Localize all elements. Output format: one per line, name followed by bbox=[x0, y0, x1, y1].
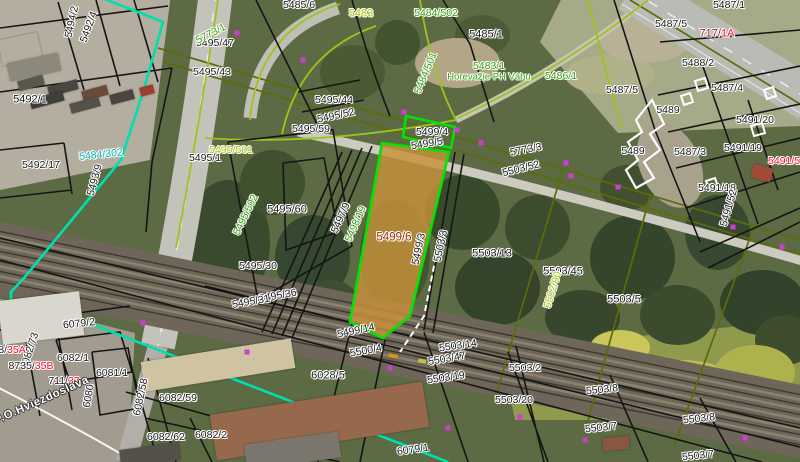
vertex-marker bbox=[455, 128, 460, 133]
vertex-marker bbox=[479, 141, 484, 146]
vertex-marker bbox=[301, 58, 306, 63]
vertex-marker bbox=[235, 31, 240, 36]
vertex-marker bbox=[141, 321, 146, 326]
vertex-markers-layer bbox=[0, 0, 800, 462]
vertex-marker bbox=[780, 245, 785, 250]
vertex-marker bbox=[245, 350, 250, 355]
vertex-marker bbox=[583, 438, 588, 443]
vertex-marker bbox=[731, 225, 736, 230]
vertex-marker bbox=[743, 436, 748, 441]
vertex-marker bbox=[564, 161, 569, 166]
vertex-marker bbox=[518, 415, 523, 420]
vertex-marker bbox=[446, 426, 451, 431]
vertex-marker bbox=[569, 174, 574, 179]
cadastral-map[interactable]: 5494/25492/45492/15492/175484/3025493/95… bbox=[0, 0, 800, 462]
vertex-marker bbox=[402, 110, 407, 115]
vertex-marker bbox=[388, 366, 393, 371]
vertex-marker bbox=[616, 185, 621, 190]
